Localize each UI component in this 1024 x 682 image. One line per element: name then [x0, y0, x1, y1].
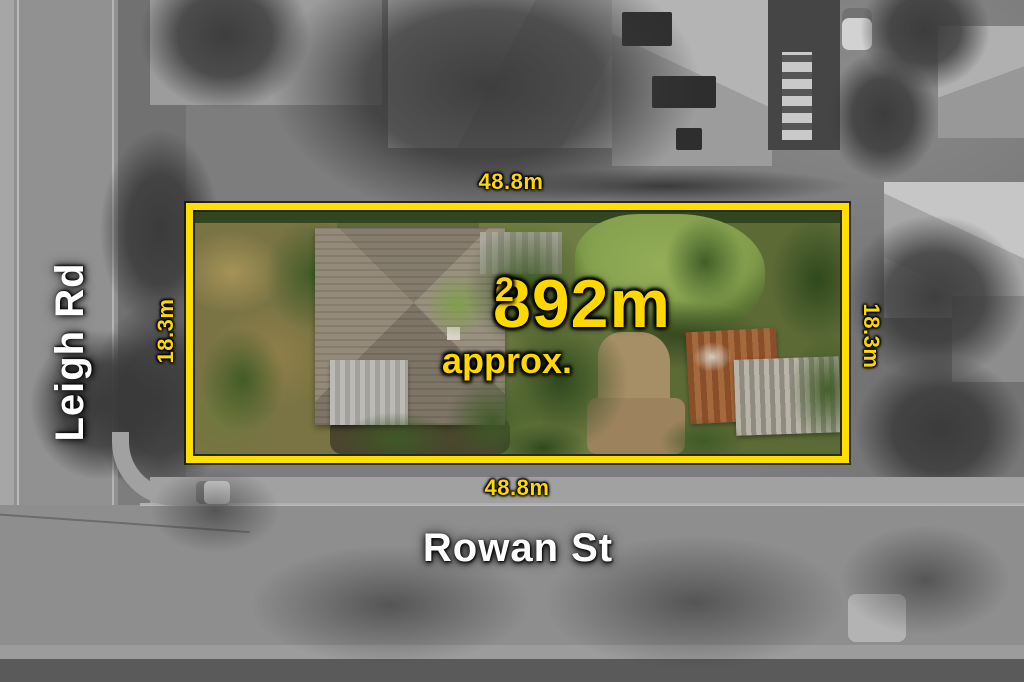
area-label: 892m2	[493, 270, 515, 338]
front-yards	[0, 659, 1024, 682]
dimension-left: 18.3m	[155, 299, 177, 364]
dimension-top: 48.8m	[479, 171, 544, 193]
street-label-rowan-st: Rowan St	[423, 528, 613, 568]
dimension-bottom: 48.8m	[485, 477, 550, 499]
area-superscript: 2	[495, 271, 515, 309]
tree-shadow	[840, 525, 1010, 635]
footpath	[150, 477, 1024, 503]
tree	[828, 50, 938, 180]
dimension-right: 18.3m	[860, 304, 882, 369]
area-value: 892m	[493, 270, 671, 338]
skylight	[782, 52, 812, 140]
tree-shadow	[150, 468, 280, 553]
area-qualifier: approx.	[442, 343, 572, 379]
street-label-leigh-rd: Leigh Rd	[50, 262, 90, 441]
aerial-property-photo: 48.8m 48.8m 18.3m 18.3m 892m2 approx. Le…	[0, 0, 1024, 682]
footpath	[0, 645, 1024, 659]
